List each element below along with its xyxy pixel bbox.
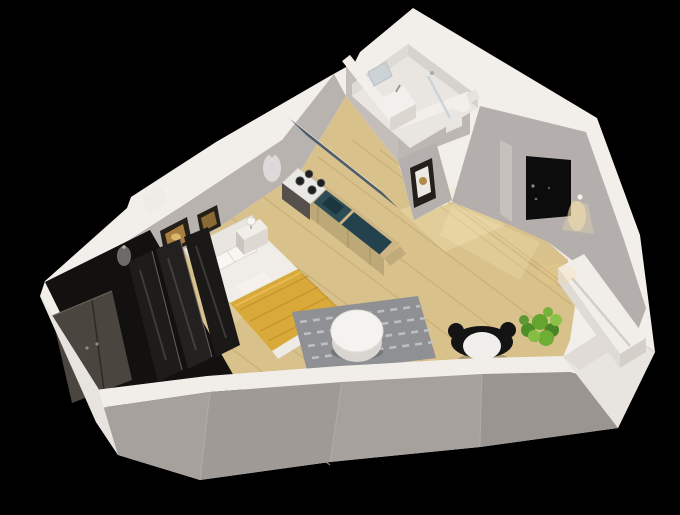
ceiling-spot-bedroom (270, 153, 274, 157)
door-hinge-dot (535, 198, 538, 201)
door-handle-dot (531, 184, 534, 187)
wall-spot-glow-bedroom (263, 154, 281, 182)
burner (317, 179, 325, 187)
render-canvas (0, 0, 680, 515)
plant-foliage (543, 307, 553, 317)
ceiling-spot-closet (122, 245, 126, 249)
entry-door-group (526, 156, 571, 220)
door-jamb-step (500, 140, 512, 222)
burner (296, 177, 304, 185)
plant-foliage (538, 330, 554, 346)
closet-handle (95, 342, 98, 345)
chair-seat-cushion (463, 332, 501, 360)
chair-armrest-left (448, 323, 464, 339)
burner (305, 170, 313, 178)
floorplan-3d-render (0, 0, 680, 515)
coffee-table-top (331, 310, 383, 352)
chair-armrest-right (500, 322, 516, 338)
hall-picture-art (419, 177, 427, 185)
toilet-bowl (454, 100, 470, 112)
entry-wall-lamp (577, 194, 582, 199)
burner (308, 186, 316, 194)
closet-handle (85, 346, 88, 349)
door-lamp-glow (568, 201, 586, 231)
door-peephole-dot (548, 187, 550, 189)
plant-foliage (528, 330, 540, 342)
shower-head (430, 71, 434, 75)
table-lamp (247, 217, 256, 225)
plant-foliage (519, 315, 529, 325)
wall-spot-glow-closet (117, 246, 131, 266)
entry-floor-glow (537, 264, 577, 284)
plant-foliage (550, 314, 562, 326)
